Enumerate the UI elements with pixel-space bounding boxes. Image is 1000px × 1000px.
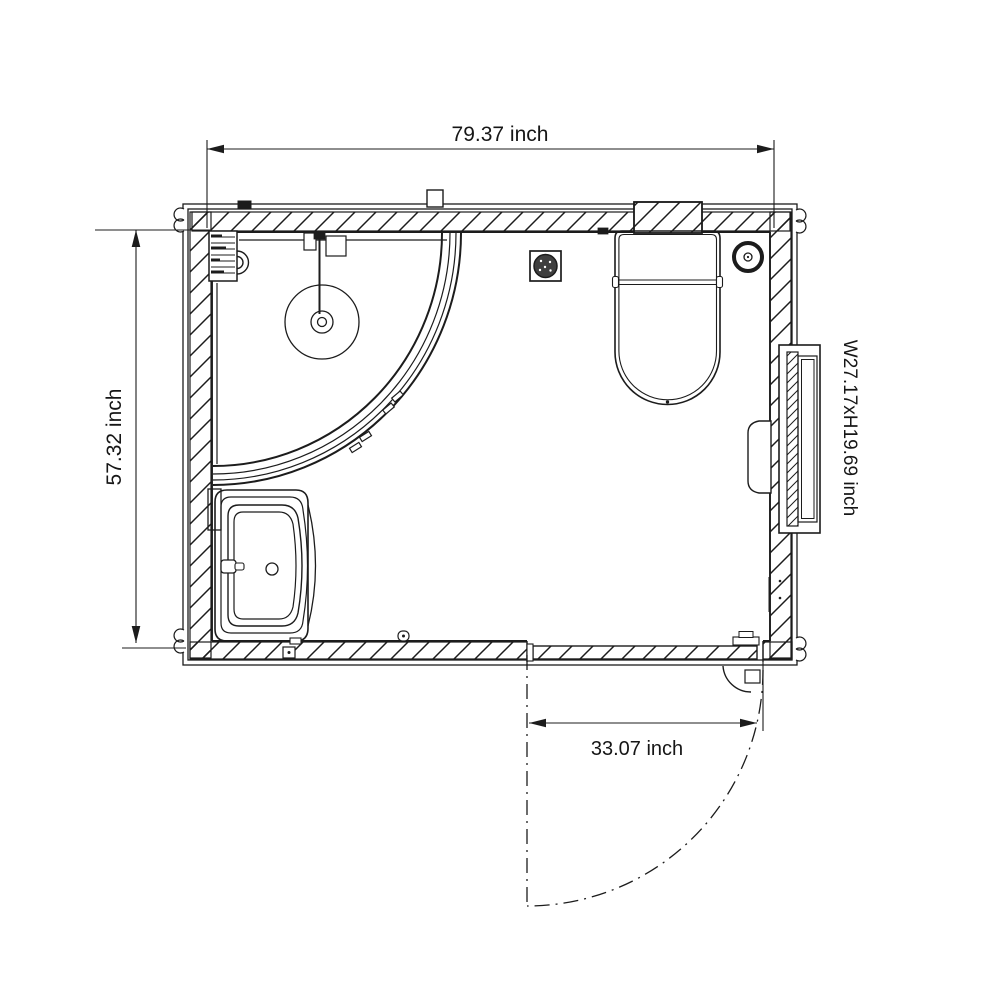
grille-handle (237, 251, 249, 274)
door-arrow-left (529, 719, 546, 728)
basin-drain (266, 563, 278, 575)
wall-bottom-left (190, 642, 527, 659)
floor-plan-page: 79.37 inch 57.32 inch 33.07 inch W27.17x… (0, 0, 1000, 1000)
shower-arc-outer (213, 233, 461, 485)
width-arrow-left (207, 145, 224, 154)
toilet-outline-inner (619, 235, 717, 400)
vent-pipe-stub (427, 190, 443, 207)
basin-faucet (221, 560, 236, 573)
wall-left (190, 212, 211, 658)
door-arrow-right (740, 719, 757, 728)
basin-faucet-spout (235, 563, 244, 570)
door-latch-plate (733, 637, 759, 645)
shower-valve-box (326, 236, 346, 256)
door-jamb-cap-left (527, 644, 533, 661)
depth-dim-label: 57.32 inch (103, 389, 126, 486)
tab-top-right (796, 209, 806, 233)
fan-hub-dot (747, 256, 749, 258)
top-clamp-tab (238, 201, 251, 208)
wall-vent-block (634, 202, 702, 233)
tab-bottom-right (796, 637, 806, 661)
door-stop (398, 631, 409, 641)
hinged-door (283, 631, 763, 908)
floor-fixing-box (283, 647, 295, 658)
shower-head (285, 231, 359, 359)
depth-arrow-top (132, 230, 141, 247)
window-handle (748, 421, 771, 493)
window-sash-hatched (787, 352, 798, 526)
shell-inner-line (188, 209, 792, 660)
wall-grille (209, 231, 249, 281)
unit-outer-shell (183, 204, 797, 665)
basin-floor-clip (290, 638, 301, 644)
toilet-drain-dot (666, 400, 669, 403)
strike-screw-1 (779, 580, 782, 583)
door-stop-dot (402, 635, 405, 638)
floor-drain (530, 251, 561, 281)
shell-outer-line (183, 204, 797, 665)
toilet-tank-seam (616, 280, 719, 285)
dimension-door-opening: 33.07 inch (529, 650, 763, 760)
shower-head-hub (311, 311, 333, 333)
wall-hatch (190, 212, 792, 659)
shower-tray-rim (217, 240, 447, 464)
ventilation-fan (734, 243, 762, 271)
width-arrow-right (757, 145, 774, 154)
toilet-outline-outer (615, 231, 720, 405)
washbasin (208, 489, 316, 644)
shower-pipe-clamp (314, 231, 325, 239)
shower-arc-3 (213, 233, 450, 474)
toilet-wall-tab (598, 228, 608, 234)
door-swing-arc (527, 670, 763, 906)
width-dim-label: 79.37 inch (452, 123, 549, 146)
door-latch-tab (739, 632, 753, 638)
door-closer-body (745, 670, 760, 683)
shower-head-disc (285, 285, 359, 359)
shower-head-center (318, 318, 327, 327)
wall-bottom-right (763, 642, 792, 659)
door-dim-label: 33.07 inch (591, 738, 683, 760)
floor-plan-drawing: 79.37 inch 57.32 inch 33.07 inch W27.17x… (0, 0, 1000, 1000)
corner-shower-enclosure (213, 231, 461, 485)
corner-connector-tabs (174, 208, 806, 661)
window-size-label: W27.17xH19.69 inch (839, 340, 860, 516)
side-window (748, 345, 820, 533)
floor-fixing-dot (288, 651, 291, 654)
toilet (598, 228, 723, 405)
door-panel-closed (533, 646, 757, 659)
depth-arrow-bottom (132, 626, 141, 643)
toilet-seam-nub-right (717, 277, 723, 288)
tab-bottom-left (174, 629, 184, 653)
toilet-seam-nub-left (613, 277, 619, 288)
basin-counter-bulge (308, 505, 316, 626)
tab-top-left (174, 208, 184, 232)
strike-screw-2 (779, 597, 782, 600)
